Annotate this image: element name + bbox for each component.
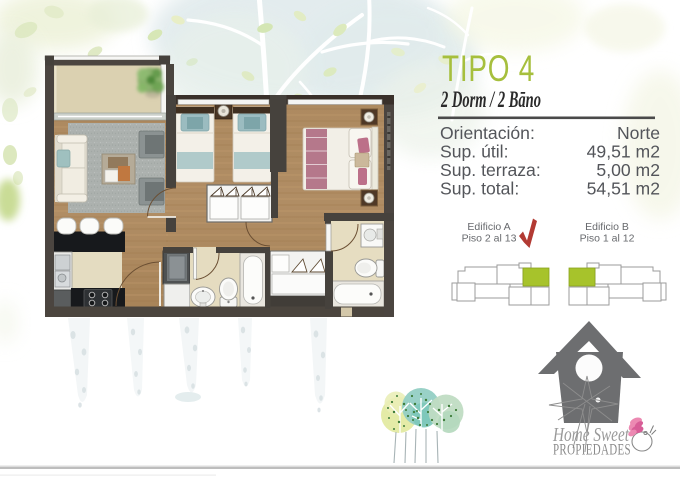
svg-text:54,51 m2: 54,51 m2 [587, 179, 660, 199]
svg-text:Sup. total:: Sup. total: [440, 179, 519, 199]
svg-text:Sup. útil:: Sup. útil: [440, 142, 508, 162]
svg-text:5,00 m2: 5,00 m2 [596, 160, 660, 180]
svg-text:Edificio B: Edificio B [585, 221, 629, 233]
svg-text:Sup. terraza:: Sup. terraza: [440, 160, 541, 180]
svg-text:Orientación:: Orientación: [440, 123, 535, 143]
svg-text:Edificio A: Edificio A [467, 221, 510, 233]
svg-text:Norte: Norte [617, 123, 660, 143]
svg-text:Piso 1 al 12: Piso 1 al 12 [580, 233, 635, 245]
svg-text:Piso 2 al 13: Piso 2 al 13 [462, 233, 517, 245]
svg-text:TIPO 4: TIPO 4 [442, 48, 535, 89]
svg-text:49,51 m2: 49,51 m2 [587, 142, 660, 162]
svg-text:2 Dorm / 2 Bāno: 2 Dorm / 2 Bāno [440, 87, 541, 112]
svg-text:PROPIEDADES: PROPIEDADES [553, 442, 631, 459]
